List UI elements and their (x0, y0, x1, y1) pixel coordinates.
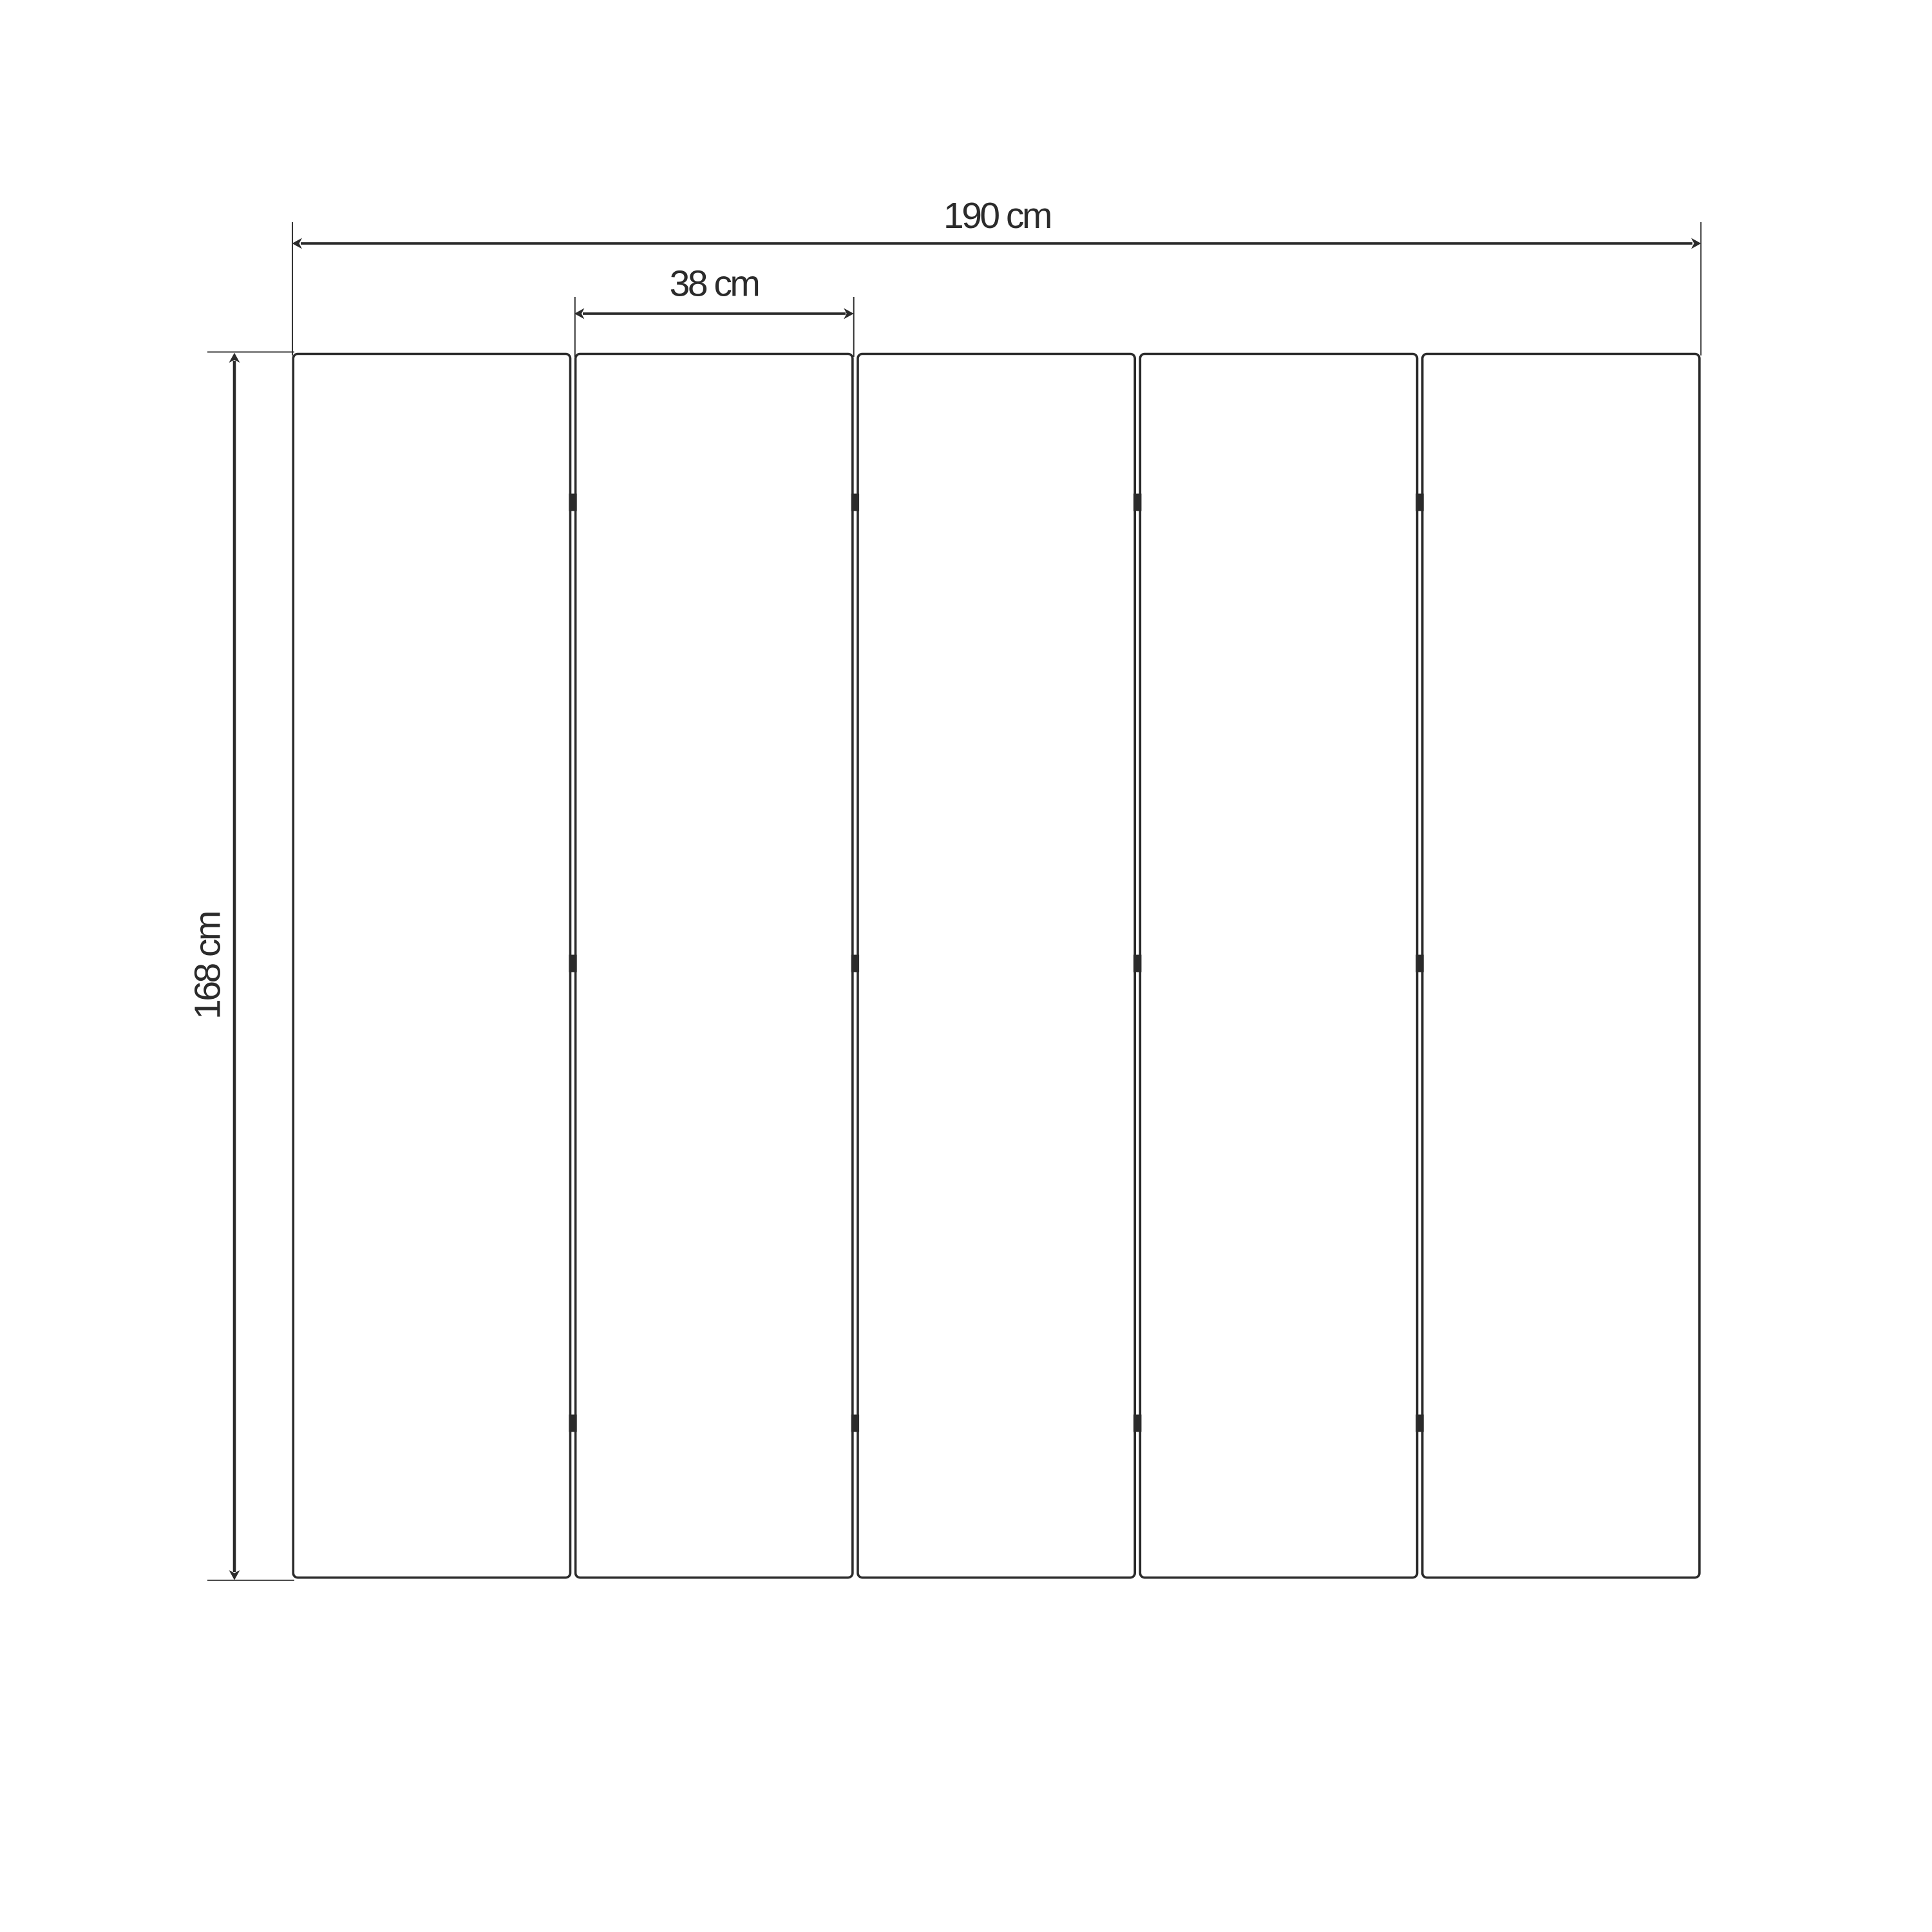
svg-text:38 cm: 38 cm (670, 263, 759, 305)
svg-text:190 cm: 190 cm (943, 195, 1050, 236)
svg-text:168 cm: 168 cm (187, 913, 229, 1019)
